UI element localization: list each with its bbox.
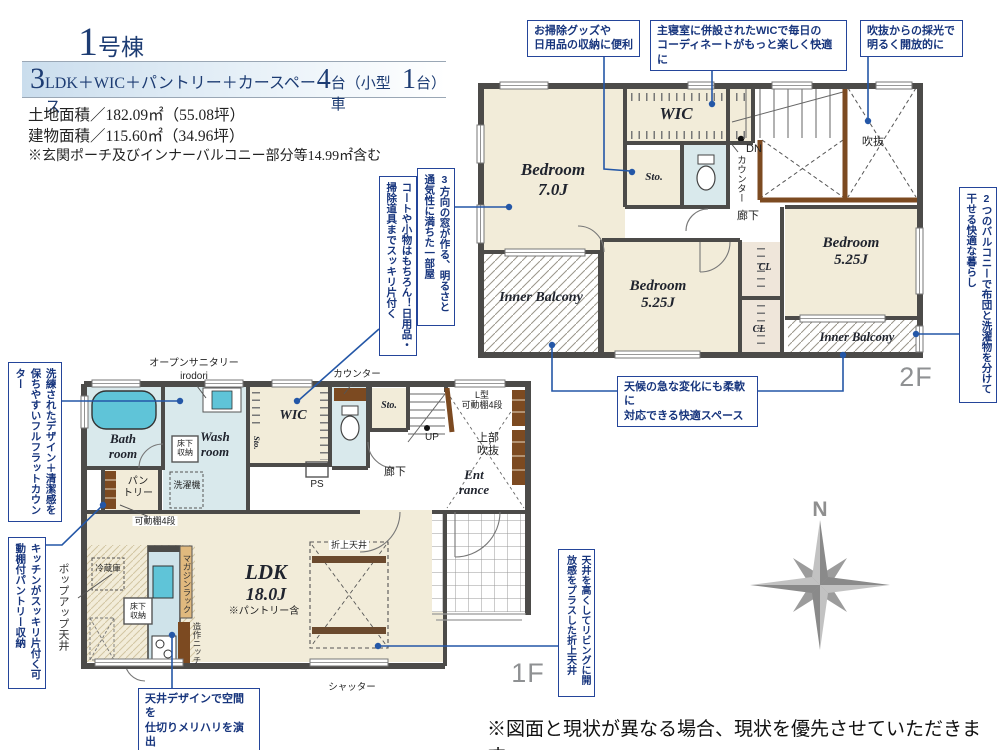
compass-rose [750,520,890,650]
ps-label: PS [310,479,323,491]
shelf4-label: 可動棚4段 [132,516,177,526]
washer-label: 洗濯機 [173,480,200,490]
floor2-label: 2F [899,362,933,393]
building-number-digit: 1 [78,19,98,64]
washroom-label: Wash room [200,430,229,460]
hallway-2f-label: 廊下 [737,210,759,223]
plan-car-note-end: 台） [416,72,446,93]
plan-car-note: 台（小型車 [331,72,402,114]
up-marker [424,425,430,431]
compass-north-label: N [812,498,827,522]
hallway-1f-label: 廊下 [384,466,406,479]
entry-shelf-top [512,390,526,426]
coved-label: 折上天井 [329,540,369,550]
underfloor-kitchen-label: 床下 収納 [130,602,146,620]
plan-ldk-count: 3 [30,62,45,96]
toilet-fixture-1f [341,406,359,440]
callout-two-balconies: 2つのバルコニーで布団と洗濯物を分けて干せる快適な暮らし [959,187,997,403]
magazine-rack-label: マガジンラック [181,554,193,614]
ldk-label: LDK18.0J [245,560,287,605]
fridge-label: 冷蔵庫 [95,564,121,574]
counter-1f-label: カウンター [333,370,381,381]
plan-small-car: 1 [402,64,416,96]
dn-label: DN [746,143,762,156]
callout-master-wic: 主寝室に併設されたWICで毎日の コーディネートがもっと楽しく快適に [650,20,847,71]
area-note: ※玄関ポーチ及びインナーバルコニー部分等14.99㎡含む [28,145,381,165]
disclaimer: ※図面と現状が異なる場合、現状を優先させていただきます。 [487,714,1000,750]
callout-coved-ceiling: 天井を高くしてリビングに開放感をプラスした折上天井 [558,549,595,697]
building-area: 建物面積／115.60㎡（34.96坪） [28,124,244,146]
callout-pantry-shelf: キッチンがスッキリ片付く可動棚付パントリー収納 [8,537,46,689]
bedroom-center-label: Bedroom5.25J [630,278,687,313]
callout-cleaning-storage: お掃除グッズや 日用品の収納に便利 [527,20,640,57]
pantry-label: パン トリー [123,476,153,499]
up-label: UP [425,432,439,444]
wic-2f-label: WIC [659,104,692,124]
void-label: 吹抜 [862,136,884,149]
floorplan-flyer: 1号棟 3LDK＋WIC＋パントリー＋カースペース4台（小型車1台） 土地面積／… [0,0,1000,750]
kitchen-sink [153,566,173,598]
inner-balcony-right-label: Inner Balcony [820,330,895,344]
entrance-label: Ent rance [459,468,489,498]
building-number-unit: 号棟 [98,35,144,60]
bedroom-right-label: Bedroom5.25J [823,235,880,270]
callout-three-windows: 3方向の窓が作る、明るさと通気性に満ちた一部屋 [417,168,455,326]
entry-shelf-bottom [512,430,526,485]
upper-void-label: 上部 吹抜 [477,432,499,457]
plan-cars: 4 [317,64,331,96]
wic-1f-label: WIC [279,408,306,424]
building-number: 1号棟 [78,18,144,65]
closet-bottom-label: CL [753,324,766,336]
callout-ceiling-design: 天井デザインで空間を 仕切りメリハリを演出 [138,688,260,750]
ldk-note-label: ※パントリー含 [229,606,300,618]
open-sanitary-sub: irodori [180,371,208,383]
callout-coat-storage: コートや小物はもちろん！日用品・掃除道具までスッキリ片付く [379,176,417,356]
shutter-label: シャッター [328,683,376,694]
wic-1f [250,384,330,467]
storage-a-label: Sto. [252,436,262,449]
plan-summary-band: 3LDK＋WIC＋パントリー＋カースペース4台（小型車1台） [22,61,446,98]
bathroom-label: Bath room [109,432,137,462]
callout-void-light: 吹抜からの採光で 明るく開放的に [860,20,963,57]
inner-balcony-left-label: Inner Balcony [499,290,583,306]
bathtub [92,391,156,429]
floor2-plan [477,82,923,358]
storage-2f-label: Sto. [645,171,662,184]
toilet-fixture-2f [697,155,715,190]
popup-ceiling-label: ポップアップ天井 [55,563,71,651]
closet-top-label: CL [759,262,772,274]
vanity-sink [212,391,232,409]
counter-2f-label: カウンター [733,155,747,203]
land-area: 土地面積／182.09㎡（55.08坪） [28,103,245,125]
open-sanitary-label: オープンサニタリー [149,358,238,370]
storage-b-label: Sto. [381,400,397,412]
pantry-shelf [104,471,116,509]
bedroom-main-label: Bedroom7.0J [521,160,585,199]
callout-flat-counter: 洗練されたデザイン＋清潔感を保ちやすいフルフラットカウンター [8,362,62,522]
niche-wall [178,622,190,664]
niche-label: 造作ニッチ [191,622,203,665]
toilet-counter [334,388,366,401]
floor1-label: 1F [511,658,545,689]
callout-weather-space: 天候の急な変化にも柔軟に 対応できる快適スペース [617,376,758,427]
underfloor-wash-label: 床下 収納 [177,439,193,457]
l-shelf-label: L型 可動棚4段 [461,390,502,411]
